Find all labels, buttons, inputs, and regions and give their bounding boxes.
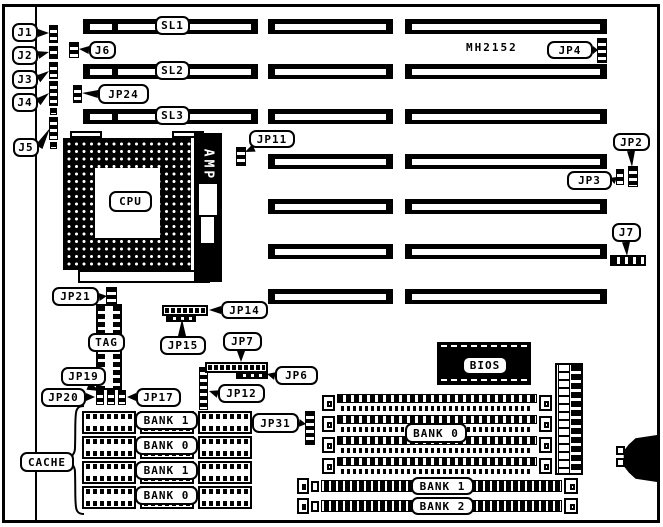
- slot-stripe: [412, 114, 600, 120]
- chip-pins-bottom: [202, 451, 248, 456]
- simm72-key-1: [311, 481, 319, 492]
- chip-pins-bottom: [202, 476, 248, 481]
- cache-chip-r1c1: [82, 411, 136, 434]
- cache-label: CACHE: [20, 452, 74, 472]
- chip-pins-top: [202, 439, 248, 444]
- jp11-jumper: [236, 147, 246, 166]
- power-connector-pins: [571, 365, 581, 473]
- isa-slot-col2-row7: [268, 289, 393, 304]
- slot-stripe: [275, 204, 386, 210]
- amp-window-small: [201, 217, 214, 243]
- bios-label: BIOS: [462, 356, 508, 375]
- cache-chip-r4c1: [82, 486, 136, 509]
- slot-stripe: [90, 24, 112, 30]
- callout-jp7: JP7: [223, 332, 262, 351]
- cpu-label: CPU: [109, 191, 152, 212]
- callout-jp3: JP3: [567, 171, 612, 190]
- simm30-contacts: [337, 457, 537, 466]
- clip-notch: [302, 504, 306, 510]
- keyboard-connector-pad-top: [616, 446, 625, 455]
- simm72-clip-left-1: [297, 478, 309, 494]
- slot-stripe: [412, 69, 600, 75]
- callout-j3: J3: [12, 70, 38, 89]
- chip-pins-top: [202, 414, 248, 419]
- simm30-clip-right-4: [539, 458, 552, 474]
- callout-jp19: JP19: [61, 367, 106, 386]
- motherboard-diagram: AMP MH2152 SL1SL2SL3CPUTAGBIOSCACHEBANK …: [0, 0, 663, 527]
- jp3-jumper: [616, 169, 624, 185]
- callout-jp31: JP31: [252, 413, 299, 433]
- simm30-clip-right-3: [539, 437, 552, 453]
- simm-bank0-label: BANK 0: [405, 423, 467, 443]
- cache-chip-r1c3: [198, 411, 252, 434]
- simm30-pins: [341, 469, 533, 474]
- slot-label-sl3: SL3: [155, 106, 190, 125]
- j2-header: [49, 46, 58, 59]
- slot-stripe: [275, 24, 386, 30]
- simm30-pins: [341, 448, 533, 453]
- j7-header: [610, 255, 646, 266]
- callout-j5: J5: [13, 138, 39, 157]
- isa-slot-col3-row7: [405, 289, 607, 304]
- chip-pins-bottom: [86, 501, 132, 506]
- cache-chip-r2c1: [82, 436, 136, 459]
- j6-jumper: [69, 42, 79, 58]
- chip-pins-bottom: [202, 501, 248, 506]
- jp19-jumper: [96, 390, 104, 405]
- cache-bank1-row1-label: BANK 1: [135, 411, 198, 430]
- callout-j6: J6: [89, 41, 116, 59]
- chip-pins-bottom: [86, 476, 132, 481]
- slot-stripe: [275, 159, 386, 165]
- clip-notch: [327, 401, 332, 407]
- isa-slot-col2-row4: [268, 154, 393, 169]
- edge-pin-b: [50, 142, 57, 149]
- simm30-clip-right-1: [539, 395, 552, 411]
- jp24-jumper: [73, 85, 82, 103]
- simm30-pins: [341, 406, 533, 411]
- jp20-jumper: [107, 390, 115, 405]
- callout-jp20: JP20: [41, 388, 86, 407]
- cache-bank1-row3-label: BANK 1: [135, 461, 198, 480]
- chip-pins-top: [86, 439, 132, 444]
- bios-pin-row-bottom: [441, 379, 527, 381]
- isa-slot-col3-row1: [405, 19, 607, 34]
- simm72-clip-right-2: [564, 498, 578, 514]
- jp4-jumper: [597, 38, 607, 63]
- amp-window-large: [199, 184, 217, 215]
- simm30-clip-left-3: [322, 437, 335, 453]
- slot-stripe: [275, 294, 386, 300]
- callout-j7: J7: [612, 223, 641, 242]
- slot-stripe: [412, 294, 600, 300]
- clip-notch: [544, 443, 549, 449]
- cache-chip-r3c1: [82, 461, 136, 484]
- slot-stripe: [275, 114, 386, 120]
- slot-stripe: [412, 159, 600, 165]
- slot-stripe: [90, 69, 112, 75]
- simm30-clip-left-4: [322, 458, 335, 474]
- slot-stripe: [90, 114, 112, 120]
- cpu-retention-tab-left: [70, 131, 102, 138]
- clip-notch: [570, 484, 576, 490]
- jp12-header: [199, 367, 208, 410]
- simm72-key-2: [311, 501, 319, 512]
- callout-jp21: JP21: [52, 287, 99, 306]
- jp14-header-row2: [166, 315, 196, 322]
- simm-bank2-label: BANK 2: [411, 497, 474, 515]
- callout-j1: J1: [12, 23, 38, 42]
- j3-header: [49, 62, 58, 79]
- callout-jp6: JP6: [275, 366, 318, 385]
- callout-jp12: JP12: [218, 384, 265, 403]
- cache-bank0-row2-label: BANK 0: [135, 436, 198, 455]
- simm-bank1-label: BANK 1: [411, 477, 474, 495]
- slot-stripe: [412, 249, 600, 255]
- isa-slot-col2-row3: [268, 109, 393, 124]
- isa-slot-col3-row2: [405, 64, 607, 79]
- cpu-socket-lever-bar: [78, 270, 210, 283]
- amp-label: AMP: [202, 149, 215, 181]
- isa-slot-col3-row6: [405, 244, 607, 259]
- board-model-label: MH2152: [466, 41, 518, 54]
- cache-chip-r3c3: [198, 461, 252, 484]
- j5-header: [49, 117, 58, 140]
- simm30-clip-left-1: [322, 395, 335, 411]
- callout-jp4: JP4: [547, 41, 593, 59]
- jp2-jumper: [628, 166, 638, 187]
- tag-label: TAG: [88, 333, 125, 352]
- clip-notch: [544, 401, 549, 407]
- simm72-clip-left-2: [297, 498, 309, 514]
- slot-stripe: [412, 24, 600, 30]
- slot-label-sl1: SL1: [155, 16, 190, 35]
- jp31-header: [305, 411, 315, 445]
- clip-notch: [302, 484, 306, 490]
- isa-slot-col2-row5: [268, 199, 393, 214]
- isa-slot-col2-row6: [268, 244, 393, 259]
- chip-pins-top: [86, 489, 132, 494]
- cache-chip-r2c3: [198, 436, 252, 459]
- clip-notch: [544, 422, 549, 428]
- slot-stripe: [275, 69, 386, 75]
- power-connector: [555, 363, 583, 475]
- clip-notch: [327, 422, 332, 428]
- slot-label-sl2: SL2: [155, 61, 190, 80]
- isa-slot-col3-row4: [405, 154, 607, 169]
- simm30-socket-4: [337, 457, 537, 475]
- isa-slot-col2-row1: [268, 19, 393, 34]
- clip-notch: [544, 464, 549, 470]
- simm30-contacts: [337, 394, 537, 403]
- chip-pins-top: [202, 489, 248, 494]
- jp14-header-cells: [165, 308, 205, 313]
- cache-chip-r4c3: [198, 486, 252, 509]
- isa-slot-col2-row2: [268, 64, 393, 79]
- callout-jp17: JP17: [136, 388, 181, 407]
- j4-header: [49, 81, 58, 106]
- slot-stripe: [412, 204, 600, 210]
- callout-jp14: JP14: [221, 301, 268, 319]
- simm30-clip-right-2: [539, 416, 552, 432]
- simm30-socket-1: [337, 394, 537, 412]
- chip-pins-top: [86, 414, 132, 419]
- clip-notch: [327, 443, 332, 449]
- amp-regulator: AMP: [194, 133, 222, 282]
- simm72-clip-right-1: [564, 478, 578, 494]
- callout-j4: J4: [12, 93, 38, 112]
- clip-notch: [570, 504, 576, 510]
- edge-pin-a: [50, 108, 57, 115]
- bios-pin-row-top: [441, 345, 527, 347]
- chip-pins-top: [202, 464, 248, 469]
- jp7-header-cells: [208, 365, 265, 370]
- clip-notch: [327, 464, 332, 470]
- simm30-clip-left-2: [322, 416, 335, 432]
- cache-bank0-row4-label: BANK 0: [135, 486, 198, 505]
- callout-j2: J2: [12, 46, 38, 65]
- callout-jp2: JP2: [613, 133, 650, 151]
- chip-pins-top: [86, 464, 132, 469]
- chip-pins-bottom: [86, 451, 132, 456]
- callout-jp24: JP24: [98, 84, 149, 104]
- chip-pins-bottom: [202, 426, 248, 431]
- j1-header: [49, 25, 58, 43]
- power-connector-sockets: [558, 365, 570, 473]
- isa-slot-col3-row5: [405, 199, 607, 214]
- keyboard-connector-pad-bottom: [616, 458, 625, 467]
- jp21-jumper: [106, 287, 117, 304]
- isa-slot-col3-row3: [405, 109, 607, 124]
- callout-jp15: JP15: [160, 336, 206, 355]
- jp17-jumper: [118, 390, 126, 405]
- chip-pins-bottom: [86, 426, 132, 431]
- slot-stripe: [275, 249, 386, 255]
- callout-jp11: JP11: [249, 130, 295, 148]
- jp7-header-row2: [236, 372, 268, 379]
